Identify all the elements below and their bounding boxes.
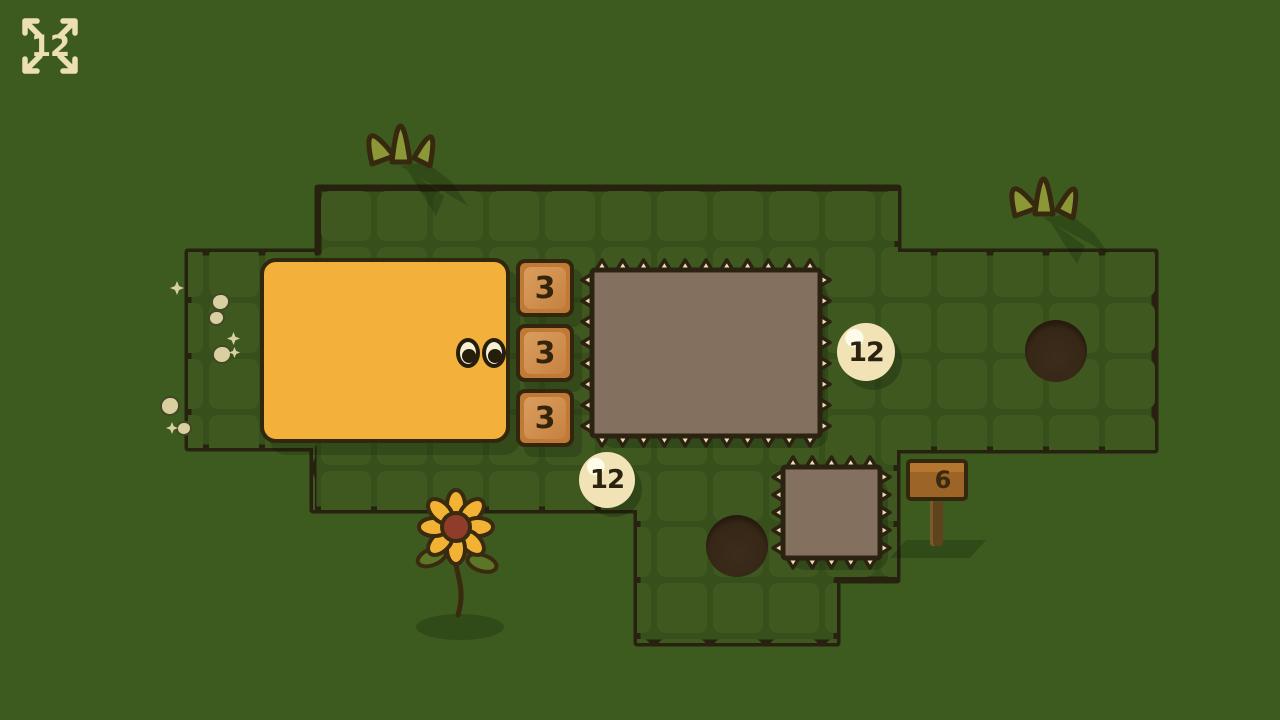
sparkle-icon	[166, 422, 178, 434]
crate[interactable]: 3	[516, 324, 574, 382]
crate-value: 3	[535, 336, 556, 371]
sparkle-icon	[227, 332, 240, 345]
crate-value: 3	[535, 401, 556, 436]
player-slime[interactable]	[260, 258, 510, 443]
sparkle-icon	[229, 347, 240, 358]
zone-capacity-badge-small: 12	[579, 452, 635, 508]
zone-capacity-badge-large: 12	[837, 323, 895, 381]
spike-zone-large	[574, 252, 838, 454]
player-pupil	[462, 349, 476, 363]
size-counter: 12	[14, 10, 86, 82]
sign: 6	[906, 459, 968, 501]
zone-capacity-value: 12	[590, 465, 624, 495]
crate[interactable]: 3	[516, 389, 574, 447]
zone-fill	[592, 270, 820, 436]
crate-face: 3	[524, 267, 566, 309]
player-eye-right	[482, 338, 506, 368]
sparkle-icon	[170, 281, 184, 295]
crate-face: 3	[524, 332, 566, 374]
crate-value: 3	[535, 271, 556, 306]
sign-post	[930, 498, 943, 546]
player-pupil	[488, 349, 502, 363]
zone-capacity-value: 12	[848, 337, 884, 368]
flower-icon	[396, 487, 516, 647]
player-eye-left	[456, 338, 480, 368]
crate-face: 3	[524, 397, 566, 439]
spike-zone-small	[765, 449, 898, 576]
zone-fill	[783, 467, 880, 558]
crate[interactable]: 3	[516, 259, 574, 317]
grass-icon	[340, 84, 480, 224]
hole	[706, 515, 768, 577]
hole	[1025, 320, 1087, 382]
sign-value: 6	[935, 466, 952, 494]
game-stage: 3 3 3 12 12 6	[0, 0, 1280, 720]
grass-icon	[985, 142, 1125, 282]
size-counter-value: 12	[14, 10, 86, 82]
